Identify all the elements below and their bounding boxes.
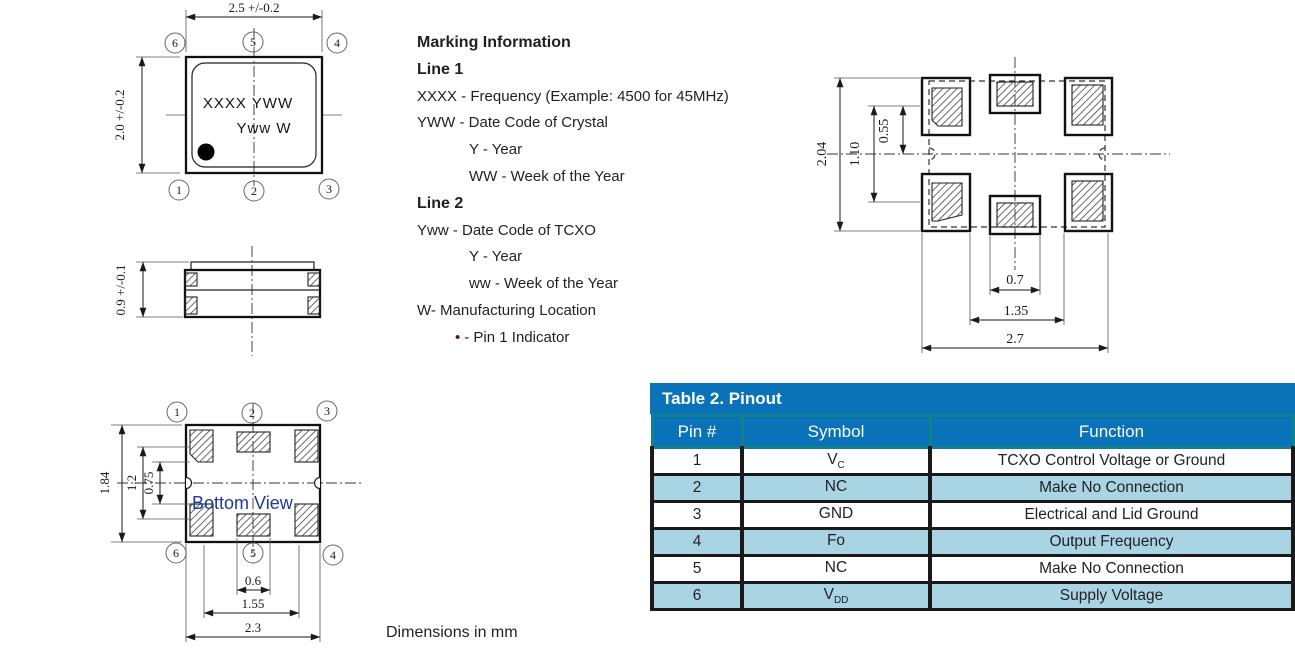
symbol-base: NC — [825, 559, 847, 576]
pin-number: 5 — [250, 546, 256, 560]
marking-info-item-pin1: •- Pin 1 Indicator — [417, 325, 777, 352]
pinout-cell-pin: 4 — [652, 529, 742, 556]
marking-info-item: WW - Week of the Year — [417, 164, 777, 191]
symbol-subscript: DD — [834, 595, 848, 606]
pinout-table-section: Table 2. Pinout Pin # Symbol Function 1 … — [650, 383, 1295, 611]
marking-info-item: W- Manufacturing Location — [417, 298, 777, 325]
marking-info-item: XXXX - Frequency (Example: 4500 for 45MH… — [417, 84, 777, 111]
pin-number: 6 — [173, 546, 179, 560]
pin-number: 2 — [249, 406, 255, 420]
pinout-cell-pin: 2 — [652, 475, 742, 502]
side-view-package — [185, 262, 320, 317]
side-view-height-dim-label: 0.9 +/-0.1 — [113, 264, 128, 315]
symbol-base: GND — [819, 505, 853, 522]
pinout-row: 1 VC TCXO Control Voltage or Ground — [652, 448, 1293, 475]
pin-number: 3 — [324, 404, 330, 418]
datasheet-page: 2.5 +/-0.2 2.0 +/-0.2 XXXX YWW Yww W 6 5… — [0, 0, 1295, 653]
top-view-height-dim-label: 2.0 +/-0.2 — [112, 89, 127, 140]
marking-information-section: Marking Information Line 1 XXXX - Freque… — [417, 30, 777, 352]
dim-label-1-55: 1.55 — [242, 596, 265, 611]
pinout-cell-pin: 1 — [652, 448, 742, 475]
pinout-cell-function: Output Frequency — [930, 529, 1293, 556]
marking-line2-heading: Line 2 — [417, 191, 777, 218]
pinout-cell-function: Make No Connection — [930, 556, 1293, 583]
pinout-header-pin: Pin # — [652, 416, 742, 448]
bottom-view-drawing: Bottom View 1 2 3 6 5 4 — [92, 385, 392, 653]
pinout-header-function: Function — [930, 416, 1293, 448]
marking-info-title: Marking Information — [417, 30, 777, 57]
dim-label-2-7: 2.7 — [1006, 332, 1024, 347]
pinout-cell-symbol: GND — [742, 502, 930, 529]
marking-info-item: Y - Year — [417, 244, 777, 271]
marking-info-item: ww - Week of the Year — [417, 271, 777, 298]
bottom-view-dimension-lines — [111, 425, 320, 642]
pinout-cell-symbol: Fo — [742, 529, 930, 556]
dim-label-2-3: 2.3 — [245, 620, 261, 635]
land-pattern-pads — [922, 75, 1112, 234]
pinout-cell-pin: 6 — [652, 583, 742, 610]
pinout-table: Pin # Symbol Function 1 VC TCXO Control … — [650, 414, 1295, 611]
pin-number: 1 — [174, 405, 180, 419]
pin-number: 5 — [250, 35, 256, 49]
pinout-row: 3 GND Electrical and Lid Ground — [652, 502, 1293, 529]
land-pattern-drawing: 2.04 1.10 0.55 0.7 1.35 2.7 — [812, 35, 1182, 365]
package-marking-line1: XXXX YWW — [203, 95, 293, 112]
pinout-table-title: Table 2. Pinout — [650, 383, 1295, 414]
pinout-cell-function: Make No Connection — [930, 475, 1293, 502]
pinout-cell-function: Supply Voltage — [930, 583, 1293, 610]
pinout-cell-function: TCXO Control Voltage or Ground — [930, 448, 1293, 475]
symbol-base: NC — [825, 478, 847, 495]
pinout-cell-symbol: NC — [742, 475, 930, 502]
dim-label-1-84: 1.84 — [97, 471, 112, 494]
marking-line1-heading: Line 1 — [417, 57, 777, 84]
pinout-row: 2 NC Make No Connection — [652, 475, 1293, 502]
dim-label-1-10: 1.10 — [848, 142, 863, 167]
pinout-row: 4 Fo Output Frequency — [652, 529, 1293, 556]
pinout-cell-function: Electrical and Lid Ground — [930, 502, 1293, 529]
pin-number: 4 — [334, 36, 340, 50]
pinout-header-symbol: Symbol — [742, 416, 930, 448]
symbol-base: V — [824, 586, 834, 603]
pinout-cell-symbol: VC — [742, 448, 930, 475]
pinout-cell-pin: 3 — [652, 502, 742, 529]
symbol-subscript: C — [838, 460, 845, 471]
dim-label-2-04: 2.04 — [815, 142, 830, 167]
pin1-indicator-text: - Pin 1 Indicator — [464, 329, 569, 346]
top-view-width-dim-label: 2.5 +/-0.2 — [228, 0, 279, 15]
pinout-header-row: Pin # Symbol Function — [652, 416, 1293, 448]
dim-label-0-7: 0.7 — [1006, 273, 1024, 288]
side-view-drawing: 0.9 +/-0.1 — [110, 238, 370, 363]
dim-label-0-55: 0.55 — [877, 119, 892, 144]
marking-info-item: Yww - Date Code of TCXO — [417, 218, 777, 245]
pin-number: 1 — [176, 183, 182, 197]
marking-info-item: Y - Year — [417, 137, 777, 164]
dim-label-1-2: 1.2 — [124, 475, 139, 491]
marking-info-item: YWW - Date Code of Crystal — [417, 110, 777, 137]
pin-number: 6 — [172, 36, 178, 50]
bottom-view-label: Bottom View — [192, 493, 294, 513]
pinout-row: 5 NC Make No Connection — [652, 556, 1293, 583]
pinout-cell-symbol: NC — [742, 556, 930, 583]
dim-label-1-35: 1.35 — [1004, 304, 1029, 319]
pinout-cell-symbol: VDD — [742, 583, 930, 610]
pin1-indicator-dot — [198, 144, 215, 161]
pin1-indicator-bullet: • — [455, 329, 460, 346]
dimensions-note: Dimensions in mm — [386, 624, 518, 642]
dim-label-0-75: 0.75 — [141, 472, 156, 495]
symbol-base: Fo — [827, 532, 845, 549]
dim-label-0-6: 0.6 — [245, 573, 262, 588]
pin-number: 3 — [326, 182, 332, 196]
pin-number: 4 — [330, 548, 336, 562]
top-view-drawing: 2.5 +/-0.2 2.0 +/-0.2 XXXX YWW Yww W 6 5… — [110, 0, 400, 218]
pinout-cell-pin: 5 — [652, 556, 742, 583]
symbol-base: V — [827, 451, 837, 468]
pin-number: 2 — [251, 184, 257, 198]
pinout-row: 6 VDD Supply Voltage — [652, 583, 1293, 610]
package-marking-line2: Yww W — [237, 120, 292, 137]
